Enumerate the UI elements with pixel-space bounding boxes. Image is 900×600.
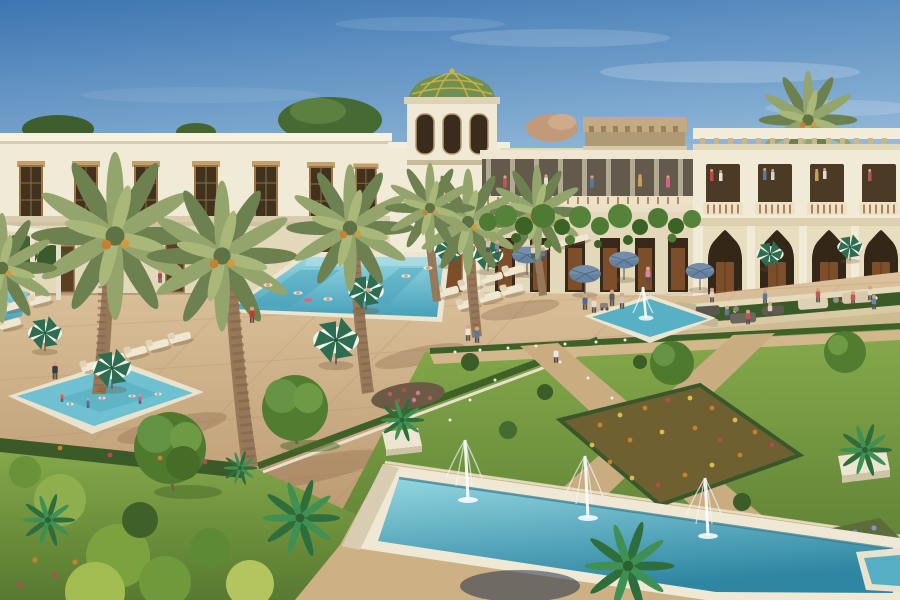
stroller — [600, 303, 608, 308]
pool-float — [304, 298, 313, 302]
tower-windows — [416, 114, 488, 154]
rendering-canvas — [0, 0, 900, 600]
resort-rendering — [0, 0, 900, 600]
